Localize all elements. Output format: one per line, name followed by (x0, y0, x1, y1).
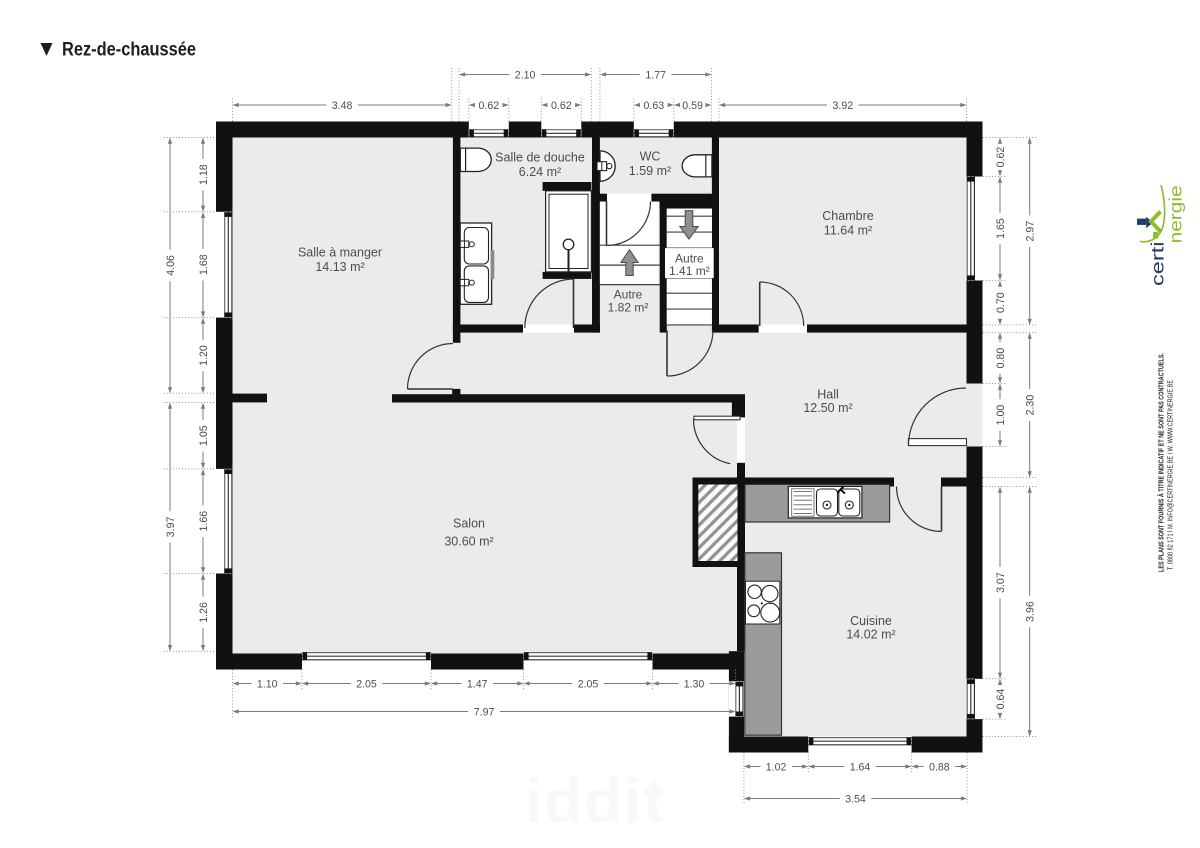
svg-text:3.97: 3.97 (165, 516, 177, 537)
svg-text:0.64: 0.64 (995, 689, 1007, 710)
svg-text:certi: certi (1148, 242, 1168, 287)
svg-text:2.05: 2.05 (578, 678, 599, 690)
svg-text:Hall: Hall (817, 388, 839, 402)
svg-text:2.30: 2.30 (1025, 395, 1037, 416)
svg-text:0.59: 0.59 (682, 100, 703, 112)
svg-text:T. 0800 82 171 I M. INFO@CERTI: T. 0800 82 171 I M. INFO@CERTINERGIE.BE … (1166, 380, 1175, 570)
svg-text:3.48: 3.48 (332, 100, 353, 112)
svg-text:1.10: 1.10 (257, 678, 278, 690)
svg-text:3.92: 3.92 (832, 100, 853, 112)
svg-text:LES PLANS SONT FOURNIS À TITRE: LES PLANS SONT FOURNIS À TITRE INDICATIF… (1157, 353, 1166, 572)
svg-text:Salon: Salon (453, 517, 485, 531)
svg-text:1.05: 1.05 (198, 425, 210, 446)
svg-text:1.26: 1.26 (198, 602, 210, 623)
svg-text:6.24 m²: 6.24 m² (519, 165, 561, 179)
svg-text:Autre: Autre (614, 288, 643, 302)
svg-text:Salle à manger: Salle à manger (298, 246, 382, 260)
svg-text:0.70: 0.70 (995, 292, 1007, 313)
svg-text:1.00: 1.00 (995, 405, 1007, 426)
svg-text:0.88: 0.88 (929, 761, 950, 773)
svg-text:nergie: nergie (1166, 185, 1186, 243)
svg-text:2.97: 2.97 (1025, 221, 1037, 242)
svg-text:1.20: 1.20 (198, 345, 210, 366)
svg-text:14.02 m²: 14.02 m² (846, 628, 895, 642)
svg-text:Cuisine: Cuisine (850, 614, 892, 628)
svg-text:1.02: 1.02 (766, 761, 787, 773)
svg-text:0.62: 0.62 (478, 100, 499, 112)
svg-text:Salle de douche: Salle de douche (495, 151, 585, 165)
svg-text:1.30: 1.30 (684, 678, 705, 690)
svg-text:1.18: 1.18 (198, 164, 210, 185)
svg-text:1.82 m²: 1.82 m² (608, 301, 649, 315)
svg-text:1.41 m²: 1.41 m² (669, 264, 710, 278)
svg-text:30.60 m²: 30.60 m² (444, 535, 493, 549)
svg-text:WC: WC (640, 150, 661, 164)
svg-text:1.77: 1.77 (645, 69, 666, 81)
svg-text:1.65: 1.65 (995, 218, 1007, 239)
svg-text:1.68: 1.68 (198, 254, 210, 275)
svg-text:1.59 m²: 1.59 m² (629, 164, 671, 178)
svg-text:0.62: 0.62 (551, 100, 572, 112)
svg-text:3.96: 3.96 (1025, 601, 1037, 622)
svg-text:11.64 m²: 11.64 m² (824, 224, 872, 238)
svg-text:0.62: 0.62 (995, 147, 1007, 168)
svg-text:Rez-de-chaussée: Rez-de-chaussée (62, 40, 196, 61)
svg-text:14.13 m²: 14.13 m² (315, 260, 364, 274)
svg-text:1.64: 1.64 (850, 761, 871, 773)
svg-text:1.66: 1.66 (198, 511, 210, 532)
svg-text:4.06: 4.06 (165, 255, 177, 276)
svg-text:2.05: 2.05 (356, 678, 377, 690)
svg-text:12.50 m²: 12.50 m² (803, 401, 852, 415)
svg-text:7.97: 7.97 (474, 706, 495, 718)
svg-text:0.63: 0.63 (643, 100, 664, 112)
svg-text:2.10: 2.10 (515, 69, 536, 81)
svg-text:3.54: 3.54 (845, 793, 866, 805)
svg-text:Chambre: Chambre (822, 209, 873, 223)
svg-text:3.07: 3.07 (995, 572, 1007, 593)
svg-text:1.47: 1.47 (467, 678, 488, 690)
svg-text:iddit: iddit (525, 767, 666, 836)
svg-text:0.80: 0.80 (995, 348, 1007, 369)
